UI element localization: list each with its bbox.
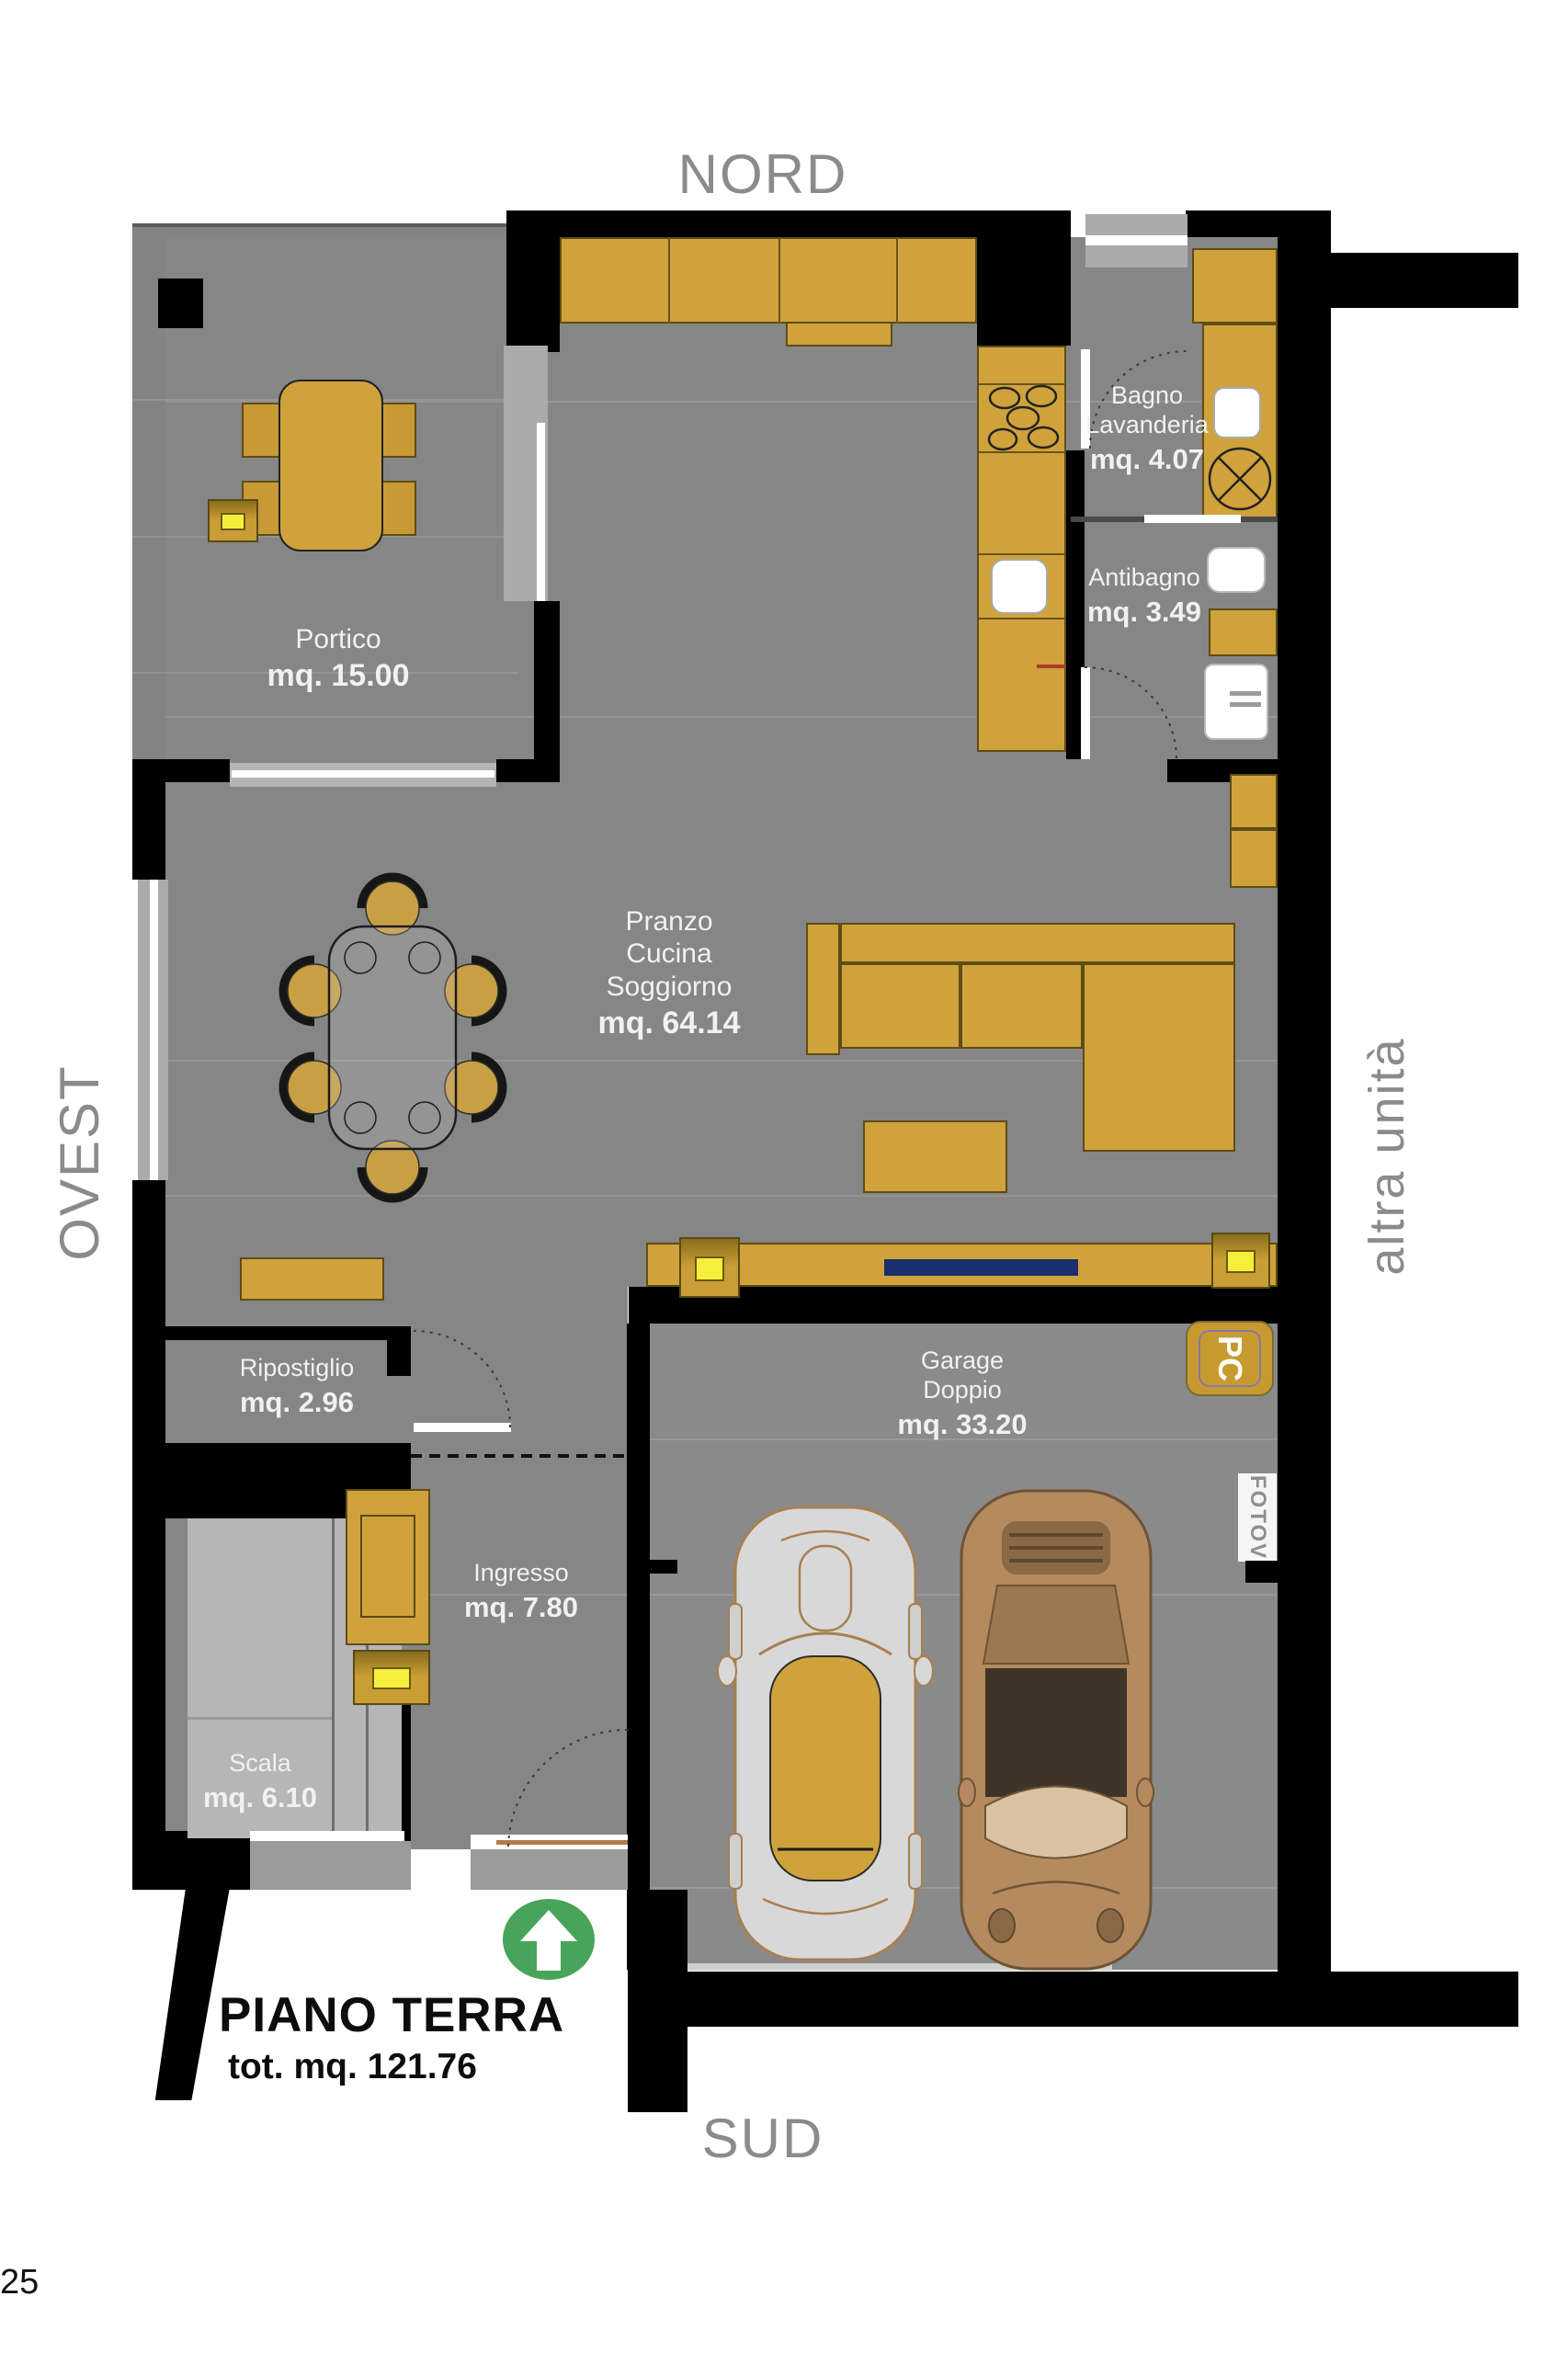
sink-icon bbox=[991, 559, 1048, 614]
plan-title-total: tot. mq. 121.76 bbox=[228, 2047, 564, 2087]
page-number: 25 bbox=[0, 2263, 39, 2302]
kitchen-cabinet-line bbox=[979, 451, 1064, 453]
room-name: Scala bbox=[159, 1749, 361, 1779]
shower-mark bbox=[1230, 691, 1261, 696]
wall bbox=[506, 237, 560, 352]
sideboard bbox=[240, 1257, 384, 1301]
sofa-seat bbox=[840, 963, 960, 1049]
wall bbox=[1186, 210, 1331, 237]
kitchen-cabinet-line bbox=[979, 618, 1064, 620]
speaker-icon bbox=[1211, 1233, 1270, 1289]
kitchen-cabinet-line bbox=[979, 383, 1064, 385]
door-leaf bbox=[1081, 667, 1090, 759]
room-name: Ingresso bbox=[411, 1559, 631, 1588]
sofa-chaise bbox=[1083, 963, 1235, 1152]
wardrobe bbox=[1230, 774, 1278, 829]
room-area: mq. 64.14 bbox=[531, 1006, 807, 1041]
room-area: mq. 33.20 bbox=[852, 1408, 1073, 1441]
room-name: Bagno Lavanderia bbox=[1064, 381, 1230, 440]
room-name: Pranzo Cucina Soggiorno bbox=[531, 905, 807, 1003]
kitchen-cabinet-line bbox=[668, 237, 670, 324]
room-name: Ripostiglio bbox=[187, 1354, 407, 1383]
sofa-back bbox=[840, 923, 1235, 963]
fotov-badge: FOTOV bbox=[1237, 1472, 1278, 1563]
room-label-antibagno: Antibagno mq. 3.49 bbox=[1057, 563, 1232, 629]
plan-title: PIANO TERRA tot. mq. 121.76 bbox=[219, 1987, 564, 2087]
room-area: mq. 7.80 bbox=[411, 1591, 631, 1624]
portico-top-line bbox=[132, 223, 509, 227]
paving-under-stairs bbox=[250, 1841, 411, 1890]
wall bbox=[1278, 237, 1331, 2013]
floor-joint bbox=[165, 1195, 1278, 1197]
room-label-soggiorno: Pranzo Cucina Soggiorno mq. 64.14 bbox=[531, 905, 807, 1041]
stair-base-strip bbox=[250, 1831, 404, 1841]
floor-joint bbox=[165, 716, 1278, 718]
room-label-ingresso: Ingresso mq. 7.80 bbox=[411, 1559, 631, 1624]
room-area: mq. 6.10 bbox=[159, 1781, 361, 1814]
room-label-bagno: Bagno Lavanderia mq. 4.07 bbox=[1064, 381, 1230, 476]
floor-plan-page: Portico mq. 15.00 Bagno Lavanderia mq. 4… bbox=[0, 0, 1568, 2353]
wall bbox=[1331, 253, 1518, 308]
floor-joint bbox=[650, 1594, 1278, 1596]
kitchen-counter-side bbox=[977, 346, 1066, 752]
sliding-door-glass bbox=[232, 770, 494, 778]
entry-door-wood bbox=[496, 1840, 628, 1845]
room-area: mq. 2.96 bbox=[187, 1386, 407, 1419]
kitchen-cabinet-line bbox=[778, 237, 780, 324]
room-area: mq. 4.07 bbox=[1064, 443, 1230, 476]
fotov-wall-nub bbox=[1245, 1561, 1278, 1583]
bagno-shelf bbox=[1144, 515, 1241, 523]
garage-threshold bbox=[687, 1963, 1112, 1971]
room-area: mq. 15.00 bbox=[228, 658, 449, 694]
adjacent-unit-label: altra unità bbox=[1358, 1018, 1414, 1294]
entrance-arrow-icon bbox=[503, 1899, 595, 1980]
shower-mark bbox=[1230, 702, 1261, 707]
wall bbox=[132, 782, 165, 880]
door-leaf bbox=[414, 1423, 511, 1432]
compass-north: NORD bbox=[643, 142, 882, 206]
room-name: Garage Doppio bbox=[852, 1347, 1073, 1405]
wall bbox=[687, 1972, 1518, 2027]
window-bagno-glass bbox=[1085, 235, 1187, 245]
compass-south: SUD bbox=[643, 2107, 882, 2170]
room-label-portico: Portico mq. 15.00 bbox=[228, 623, 449, 694]
sofa-seat bbox=[960, 963, 1083, 1049]
portico-table bbox=[278, 380, 383, 551]
portico-pillar bbox=[158, 278, 203, 328]
room-label-ripostiglio: Ripostiglio mq. 2.96 bbox=[187, 1354, 407, 1419]
room-label-scala: Scala mq. 6.10 bbox=[159, 1749, 361, 1814]
room-area: mq. 3.49 bbox=[1057, 596, 1232, 629]
kitchen-counter-deep bbox=[786, 322, 892, 347]
compass-west: OVEST bbox=[48, 1043, 103, 1282]
wall bbox=[496, 759, 560, 782]
wall bbox=[627, 1324, 650, 1970]
kitchen-cabinet-line bbox=[896, 237, 898, 324]
wall bbox=[132, 759, 230, 782]
entry-cabinet-inner bbox=[360, 1515, 415, 1618]
stove-red-mark bbox=[1037, 665, 1066, 668]
room-name: Antibagno bbox=[1057, 563, 1232, 593]
plan-title-main: PIANO TERRA bbox=[219, 1987, 564, 2043]
room-label-garage: Garage Doppio mq. 33.20 bbox=[852, 1347, 1073, 1441]
bagno-counter-top bbox=[1192, 248, 1278, 324]
partition-window-glass bbox=[537, 423, 545, 601]
kitchen-cabinet-line bbox=[979, 553, 1064, 555]
wardrobe bbox=[1230, 829, 1278, 888]
speaker-icon bbox=[679, 1237, 740, 1298]
wall bbox=[165, 1326, 402, 1340]
wall bbox=[650, 1560, 677, 1574]
wall bbox=[628, 1890, 687, 2112]
sofa-armrest bbox=[806, 923, 840, 1055]
coffee-table bbox=[863, 1120, 1007, 1193]
entry-paving bbox=[471, 1849, 628, 1890]
pc-badge-label: PC bbox=[1210, 1336, 1249, 1381]
room-name: Portico bbox=[228, 623, 449, 655]
fotov-badge-label: FOTOV bbox=[1244, 1475, 1270, 1560]
floor-joint bbox=[650, 1887, 1278, 1889]
speaker-icon bbox=[353, 1650, 430, 1705]
speaker-icon bbox=[208, 499, 258, 542]
wall bbox=[534, 601, 560, 759]
kitchen-counter-top bbox=[560, 237, 977, 324]
window-west-glass bbox=[150, 880, 158, 1180]
stair-step-line bbox=[187, 1717, 332, 1720]
wall bbox=[977, 210, 1071, 346]
pc-badge: PC bbox=[1186, 1321, 1274, 1396]
tv-icon bbox=[884, 1259, 1078, 1276]
